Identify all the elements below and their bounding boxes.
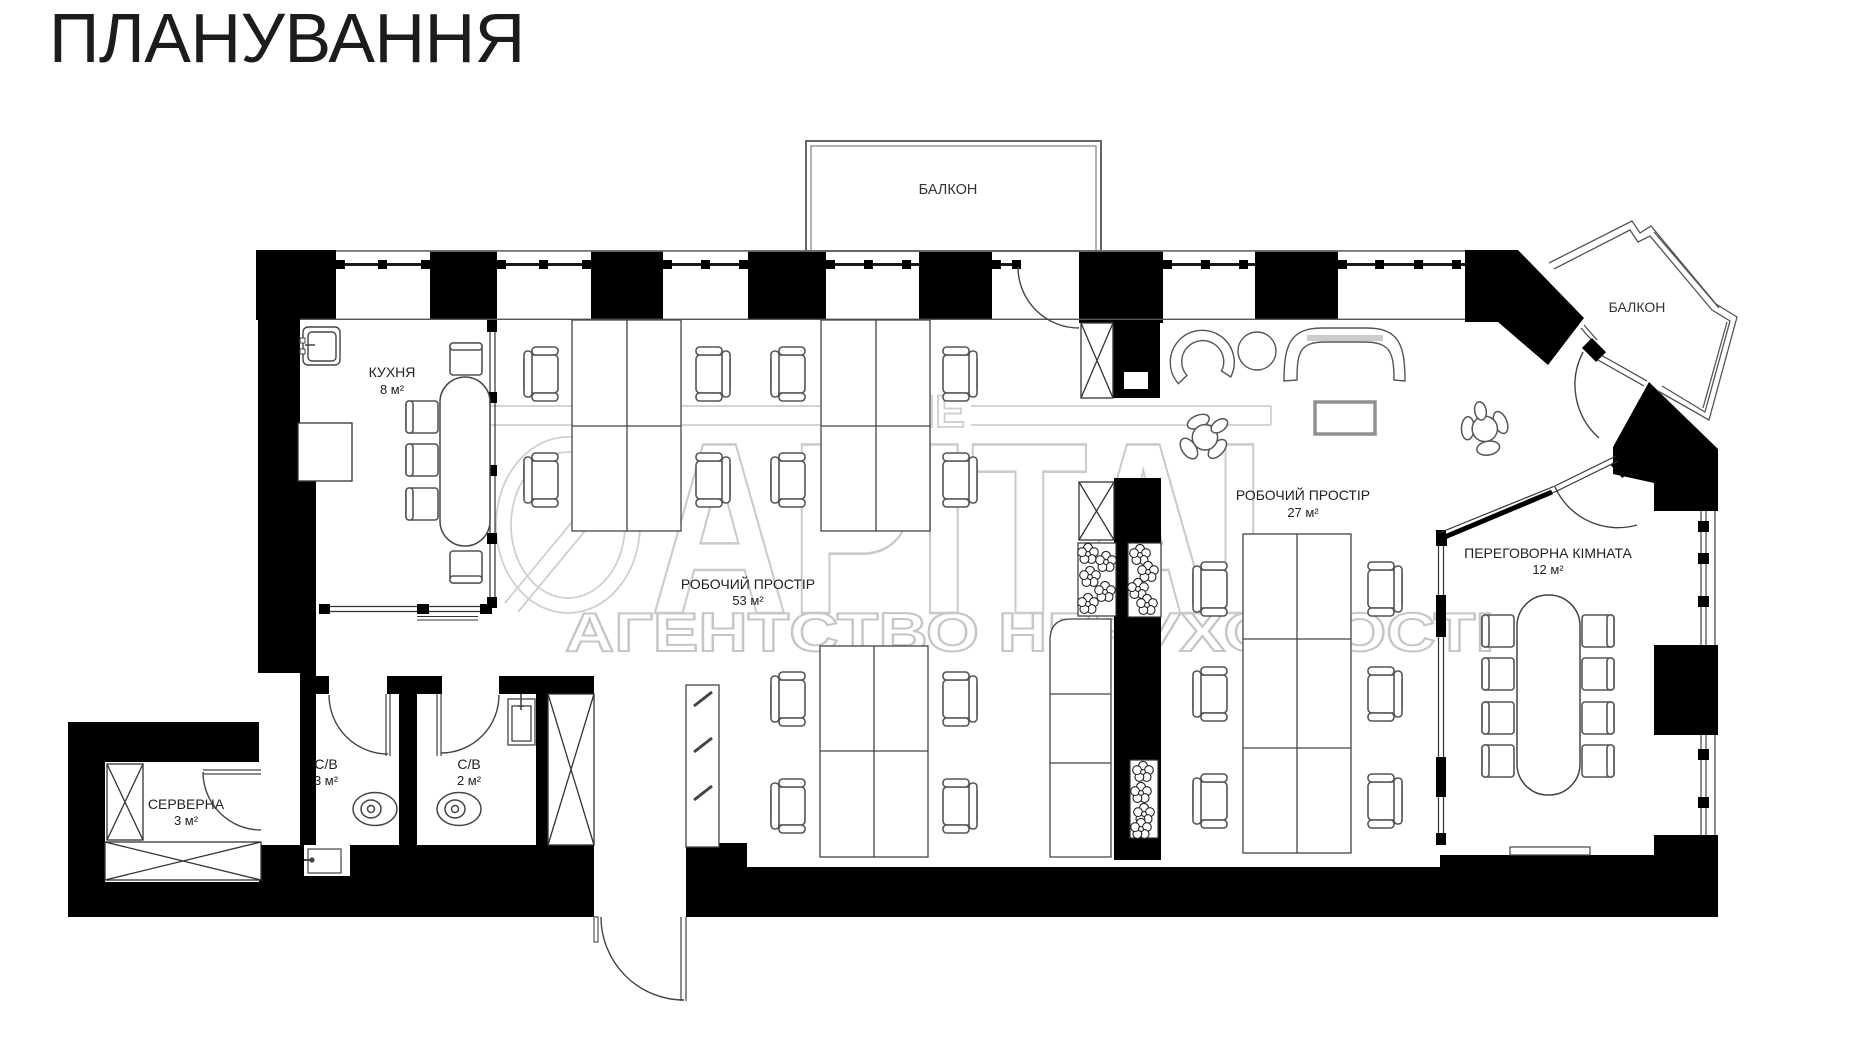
svg-text:РОБОЧИЙ ПРОСТІР: РОБОЧИЙ ПРОСТІР — [1236, 486, 1370, 503]
svg-text:С/В: С/В — [457, 756, 480, 772]
svg-text:СЕРВЕРНА: СЕРВЕРНА — [148, 796, 225, 812]
svg-text:КУХНЯ: КУХНЯ — [369, 364, 416, 380]
svg-text:БАЛКОН: БАЛКОН — [919, 182, 978, 198]
svg-text:3 м²: 3 м² — [314, 773, 339, 788]
svg-text:РОБОЧИЙ ПРОСТІР: РОБОЧИЙ ПРОСТІР — [681, 575, 815, 592]
svg-text:3 м²: 3 м² — [174, 813, 199, 828]
svg-text:ПЛАНУВАННЯ: ПЛАНУВАННЯ — [49, 0, 525, 77]
svg-text:ПЕРЕГОВОРНА КІМНАТА: ПЕРЕГОВОРНА КІМНАТА — [1464, 545, 1632, 561]
svg-text:53 м²: 53 м² — [732, 593, 764, 608]
svg-text:27 м²: 27 м² — [1287, 505, 1319, 520]
svg-text:АГЕНТСТВО НЕРУХОМОСТІ: АГЕНТСТВО НЕРУХОМОСТІ — [565, 602, 1494, 663]
svg-text:12 м²: 12 м² — [1532, 562, 1564, 577]
svg-text:2 м²: 2 м² — [457, 773, 482, 788]
svg-text:БАЛКОН: БАЛКОН — [1609, 299, 1666, 315]
svg-text:8 м²: 8 м² — [380, 382, 405, 397]
svg-text:С/В: С/В — [314, 756, 337, 772]
